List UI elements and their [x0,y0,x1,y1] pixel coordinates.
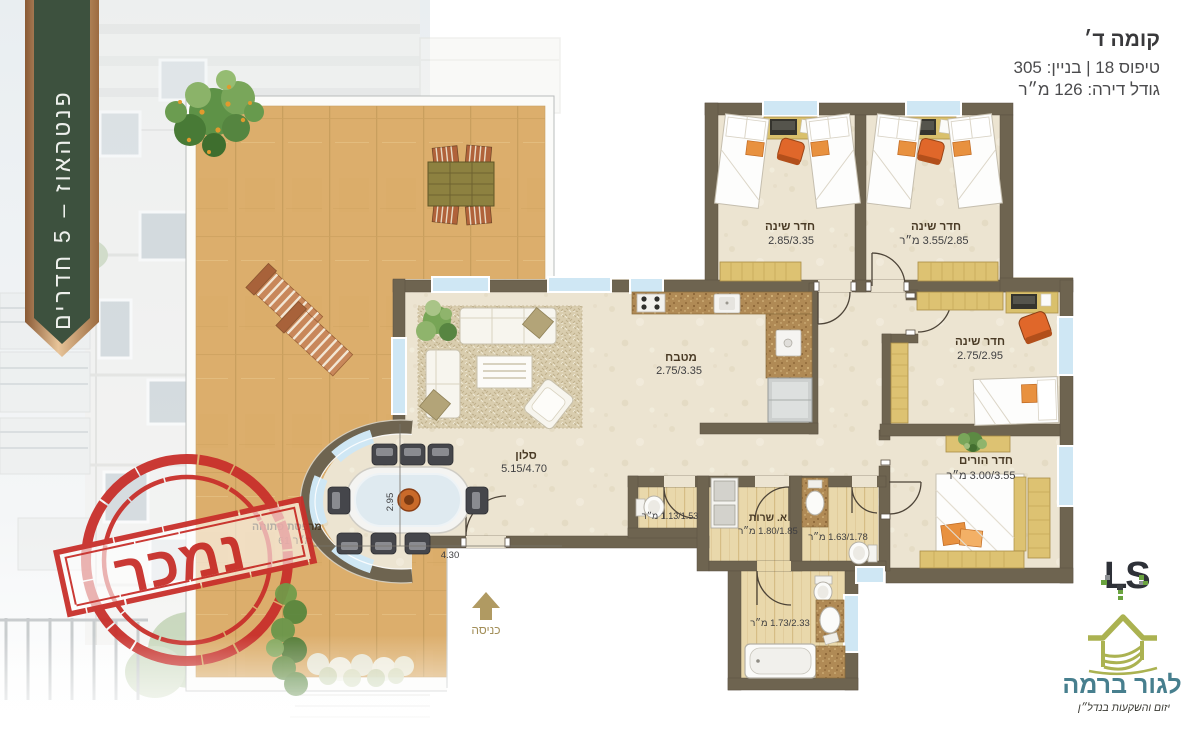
svg-text:3.55/2.85 מ״ר: 3.55/2.85 מ״ר [900,234,969,247]
svg-text:1.73/2.33 מ״ר: 1.73/2.33 מ״ר [750,618,810,629]
svg-text:1.13/1.53 מ״ר: 1.13/1.53 מ״ר [642,511,698,521]
svg-text:2.75/2.95: 2.75/2.95 [957,350,1003,362]
svg-text:כניסה: כניסה [471,623,500,637]
svg-text:קומה ד׳: קומה ד׳ [1084,28,1160,51]
svg-text:2.95: 2.95 [385,493,396,512]
svg-text:לגור ברמה: לגור ברמה [1062,671,1181,699]
svg-text:2.75/3.35: 2.75/3.35 [656,365,702,377]
svg-text:חדר שינה: חדר שינה [955,336,1005,348]
svg-text:1.80/1.85 מ״ר: 1.80/1.85 מ״ר [738,526,798,537]
svg-text:חדר שינה: חדר שינה [765,221,815,233]
svg-text:4.30: 4.30 [441,550,460,561]
svg-text:פנטהאוז – 5 חדרים: פנטהאוז – 5 חדרים [49,89,75,330]
svg-text:טיפוס 18 | בניין: 305: טיפוס 18 | בניין: 305 [1014,58,1160,77]
svg-text:חדר הורים: חדר הורים [959,455,1013,467]
svg-text:3.00/3.55 מ״ר: 3.00/3.55 מ״ר [947,469,1016,482]
svg-text:חדר שינה: חדר שינה [911,221,961,233]
svg-text:גודל דירה: 126 מ״ר: גודל דירה: 126 מ״ר [1018,80,1160,99]
svg-text:2.85/3.35: 2.85/3.35 [768,235,814,247]
svg-text:מטבח: מטבח [665,352,697,364]
svg-text:א. שרות: א. שרות [749,512,787,524]
svg-text:סלון: סלון [515,449,537,462]
svg-text:5.15/4.70: 5.15/4.70 [501,463,547,475]
svg-text:1.63/1.78 מ״ר: 1.63/1.78 מ״ר [808,532,868,543]
svg-text:יזום והשקעות בנדל״ן: יזום והשקעות בנדל״ן [1077,702,1170,714]
